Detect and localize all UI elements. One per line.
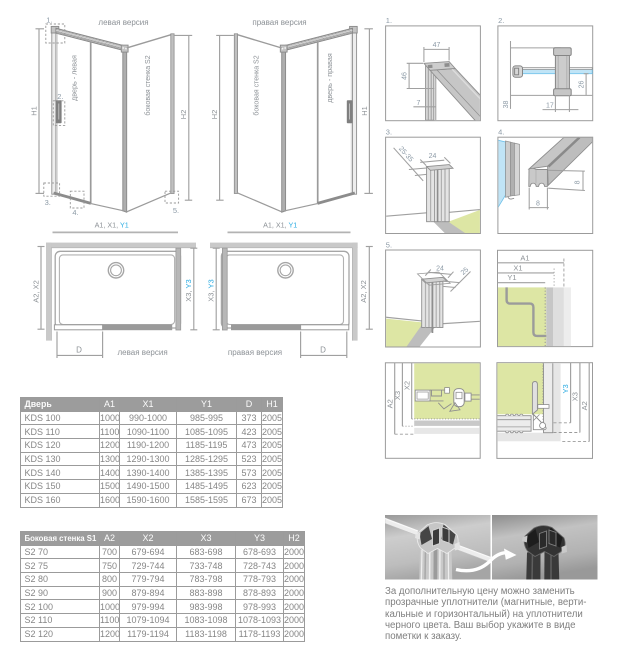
- svg-text:24: 24: [429, 153, 437, 160]
- svg-text:боковая стенка S2: боковая стенка S2: [253, 55, 261, 115]
- svg-text:47: 47: [433, 42, 441, 49]
- svg-text:X3, Y3: X3, Y3: [206, 279, 215, 301]
- svg-text:4.: 4.: [72, 208, 78, 217]
- svg-text:боковая стенка S2: боковая стенка S2: [144, 55, 152, 115]
- svg-text:Y3: Y3: [561, 384, 570, 393]
- svg-text:3.: 3.: [386, 127, 392, 136]
- svg-text:левая версия: левая версия: [98, 18, 148, 27]
- svg-text:дверь - правая: дверь - правая: [325, 53, 334, 103]
- svg-text:8: 8: [536, 200, 540, 207]
- svg-text:46: 46: [401, 72, 408, 80]
- svg-text:X3: X3: [571, 392, 580, 401]
- svg-text:4.: 4.: [498, 127, 504, 136]
- svg-text:правая версия: правая версия: [228, 348, 282, 357]
- svg-text:H2: H2: [179, 110, 188, 120]
- svg-text:H2: H2: [210, 110, 219, 120]
- svg-text:24: 24: [436, 266, 444, 273]
- svg-text:X2: X2: [402, 381, 411, 390]
- svg-text:A1: A1: [520, 253, 529, 262]
- svg-text:A2: A2: [580, 401, 589, 410]
- svg-text:X3, Y3: X3, Y3: [184, 279, 193, 301]
- svg-text:8: 8: [574, 180, 581, 184]
- svg-text:5.: 5.: [386, 240, 392, 249]
- svg-text:H1: H1: [30, 106, 39, 116]
- svg-text:A2, X2: A2, X2: [31, 280, 40, 303]
- svg-text:H1: H1: [360, 106, 369, 116]
- svg-text:7: 7: [417, 100, 421, 107]
- svg-text:17: 17: [546, 103, 554, 110]
- svg-text:A1, X1, Y1: A1, X1, Y1: [263, 221, 297, 230]
- svg-text:3.: 3.: [45, 198, 51, 207]
- svg-text:2.: 2.: [498, 16, 504, 25]
- svg-text:1.: 1.: [386, 16, 392, 25]
- svg-text:дверь - левая: дверь - левая: [69, 55, 78, 101]
- svg-text:1.: 1.: [46, 15, 52, 24]
- svg-text:левая версия: левая версия: [118, 348, 168, 357]
- svg-text:A2: A2: [385, 399, 394, 408]
- svg-text:Y1: Y1: [507, 273, 516, 282]
- svg-text:A2, X2: A2, X2: [359, 280, 368, 303]
- svg-text:X1: X1: [513, 263, 522, 272]
- svg-text:2.: 2.: [57, 92, 63, 101]
- svg-text:26: 26: [579, 81, 586, 89]
- svg-text:D: D: [320, 345, 326, 354]
- svg-text:D: D: [76, 345, 82, 354]
- svg-text:38: 38: [503, 101, 510, 109]
- svg-text:5.: 5.: [173, 206, 179, 215]
- svg-text:правая версия: правая версия: [252, 18, 306, 27]
- svg-text:A1, X1, Y1: A1, X1, Y1: [95, 221, 129, 230]
